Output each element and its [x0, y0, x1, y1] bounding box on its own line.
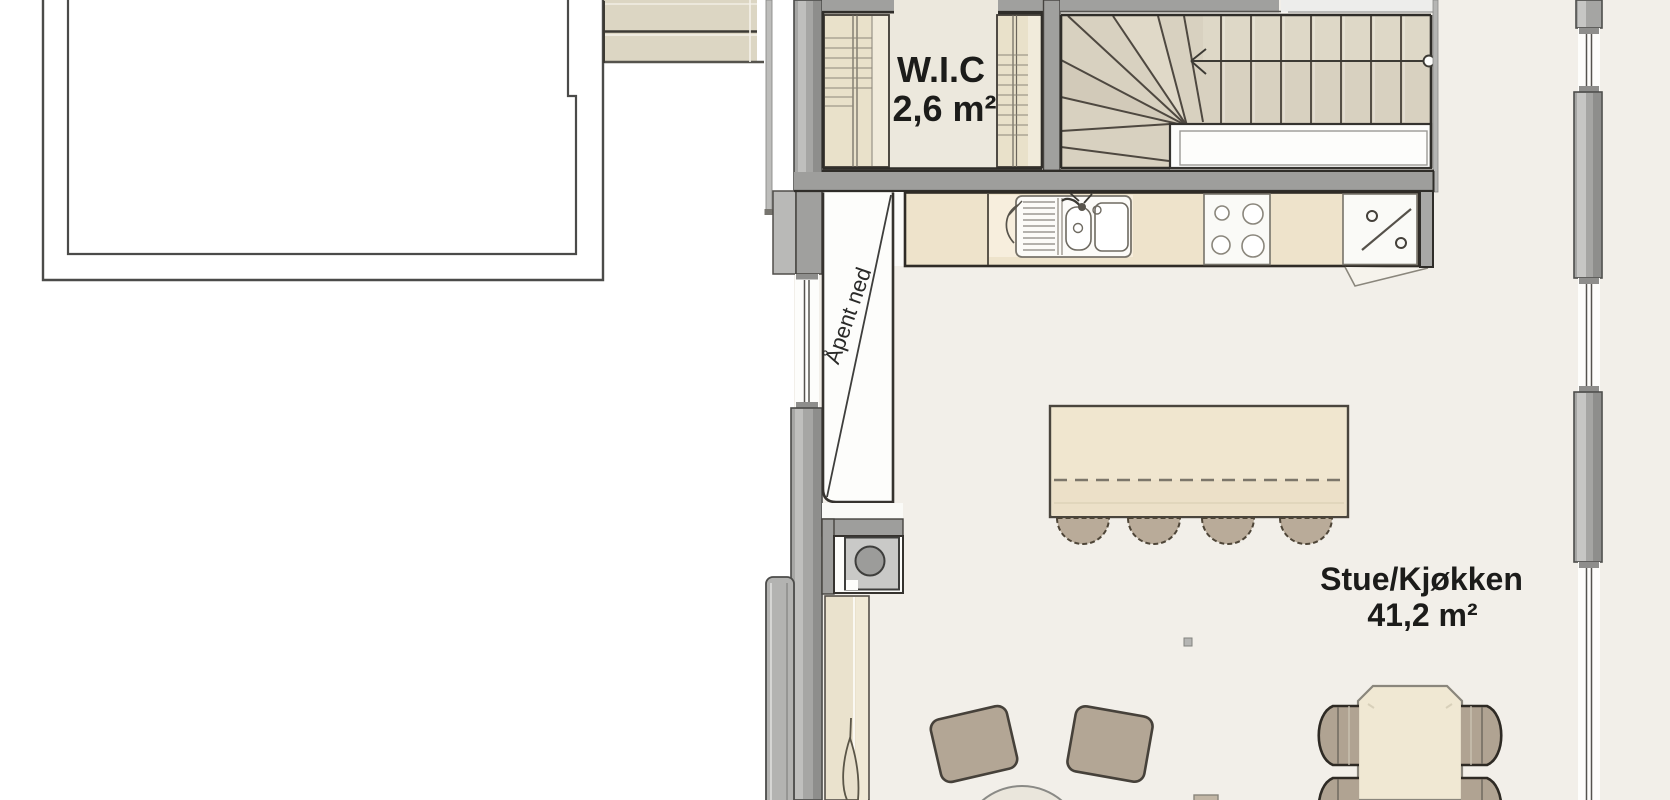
svg-text:Stue/Kjøkken: Stue/Kjøkken — [1320, 561, 1523, 597]
svg-text:2,6 m²: 2,6 m² — [892, 88, 996, 129]
svg-text:W.I.C: W.I.C — [897, 49, 985, 90]
svg-text:41,2 m²: 41,2 m² — [1367, 597, 1477, 633]
